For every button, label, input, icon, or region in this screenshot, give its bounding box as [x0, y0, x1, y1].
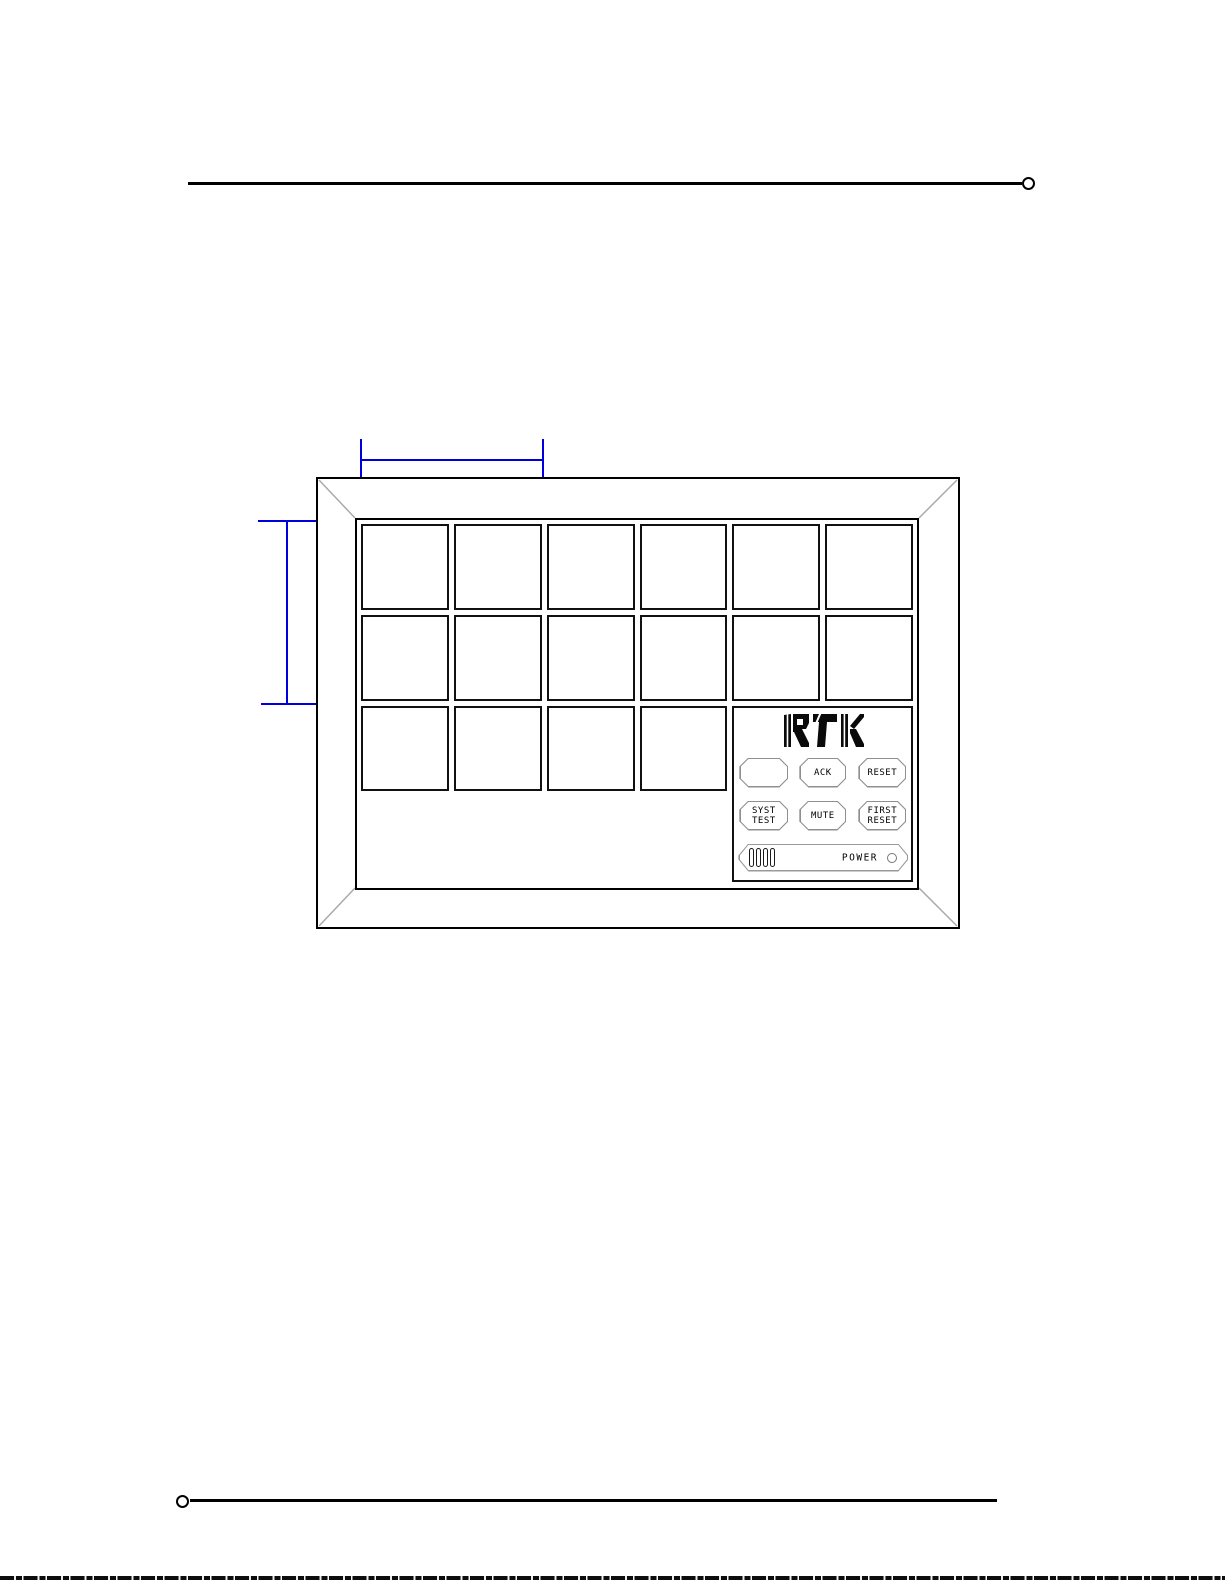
ack-button: ACK [799, 758, 846, 788]
power-bar-face: POWER [740, 845, 907, 870]
dimension-line-left-span [286, 520, 288, 705]
power-led-icon [887, 853, 897, 863]
blank-button [739, 758, 788, 788]
mute-button-label: MUTE [811, 811, 835, 821]
page-bottom-edge [0, 1576, 1225, 1580]
annunciator-window [825, 615, 913, 701]
reset-button: RESET [858, 758, 906, 788]
first-reset-button-label-line2: RESET [868, 816, 898, 826]
annunciator-window [361, 615, 449, 701]
annunciator-window [547, 615, 635, 701]
power-bar: POWER [738, 844, 908, 872]
syst-test-button-label-line2: TEST [752, 816, 776, 826]
window-grid: RTK ACK RESET SYST TE [361, 524, 913, 882]
dimension-line-top-span [360, 459, 544, 461]
syst-test-button: SYST TEST [739, 801, 788, 831]
manual-page: RTK ACK RESET SYST TE [0, 0, 1225, 1585]
annunciator-window [547, 524, 635, 610]
annunciator-window [361, 706, 449, 792]
syst-test-button-label-line1: SYST [752, 806, 776, 816]
annunciator-window [825, 524, 913, 610]
annunciator-panel-drawing: RTK ACK RESET SYST TE [316, 477, 960, 929]
control-section: RTK ACK RESET SYST TE [732, 706, 913, 883]
first-reset-button-label-line1: FIRST [868, 806, 898, 816]
annunciator-window [732, 524, 820, 610]
horn-grille-icon [749, 848, 775, 867]
rtk-logo [782, 713, 864, 747]
annunciator-window [454, 706, 542, 792]
ack-button-label: ACK [814, 768, 832, 778]
mute-button: MUTE [799, 801, 846, 831]
header-ring-mark [1022, 177, 1035, 190]
footer-ring-mark [176, 1495, 189, 1508]
annunciator-window [361, 524, 449, 610]
reset-button-label: RESET [868, 768, 898, 778]
panel-face: RTK ACK RESET SYST TE [355, 518, 919, 890]
footer-rule [190, 1499, 997, 1502]
annunciator-window [454, 615, 542, 701]
annunciator-window [640, 524, 728, 610]
annunciator-window [640, 706, 728, 792]
annunciator-window [454, 524, 542, 610]
power-label: POWER [842, 852, 878, 863]
annunciator-window [547, 706, 635, 792]
annunciator-window [640, 615, 728, 701]
annunciator-window [732, 615, 820, 701]
header-rule [188, 182, 1022, 185]
first-reset-button: FIRST RESET [858, 801, 906, 831]
